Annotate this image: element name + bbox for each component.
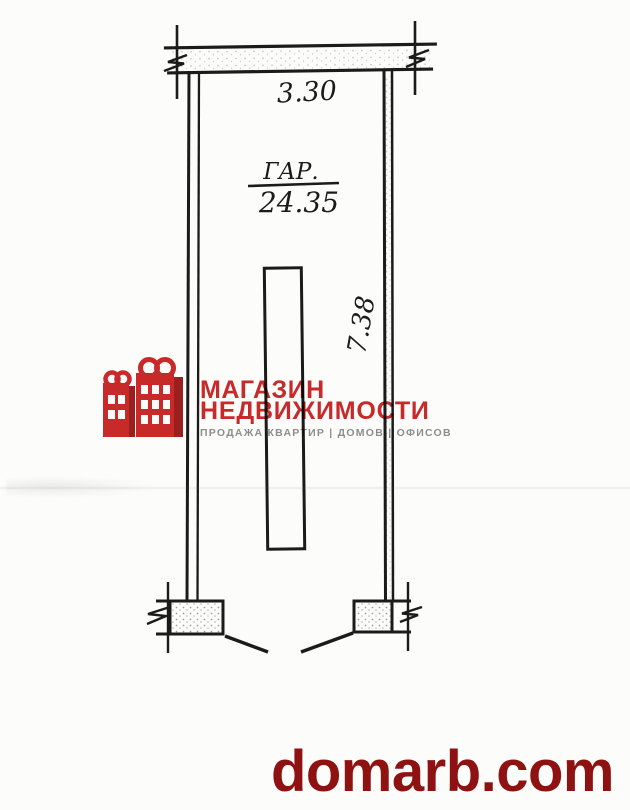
door-leaf-right — [301, 633, 353, 652]
room-abbreviation-label: ГАР. — [262, 159, 318, 185]
bottom-right-pier — [301, 582, 422, 652]
left-wall — [187, 71, 199, 602]
door-leaf-left — [225, 636, 268, 652]
paper-fold-line — [0, 487, 630, 489]
break-mark-icon — [400, 607, 422, 622]
agency-name-line2: НЕДВИЖИМОСТИ — [200, 401, 452, 422]
width-dimension-label: 3.30 — [276, 75, 338, 109]
break-mark-icon — [147, 607, 170, 624]
red-buildings-shopping-bag-icon — [101, 355, 191, 441]
top-wall — [164, 44, 437, 73]
height-dimension-label: 7.38 — [342, 294, 382, 356]
website-watermark: domarb.com — [271, 738, 614, 805]
room-area-label: 24.35 — [258, 186, 339, 219]
right-wall — [384, 71, 393, 602]
agency-tagline: ПРОДАЖА КВАРТИР | ДОМОВ | ОФИСОВ — [200, 427, 452, 439]
agency-logo-text: МАГАЗИН НЕДВИЖИМОСТИ ПРОДАЖА КВАРТИР | Д… — [200, 380, 452, 441]
room-fraction-label: ГАР. 24.35 — [248, 159, 339, 219]
bottom-left-pier — [147, 582, 268, 653]
agency-watermark-logo: МАГАЗИН НЕДВИЖИМОСТИ ПРОДАЖА КВАРТИР | Д… — [101, 349, 436, 441]
top-wall-hatch — [170, 49, 430, 70]
scanned-floorplan-page: 3.30 ГАР. 24.35 7.38 — [0, 0, 630, 810]
